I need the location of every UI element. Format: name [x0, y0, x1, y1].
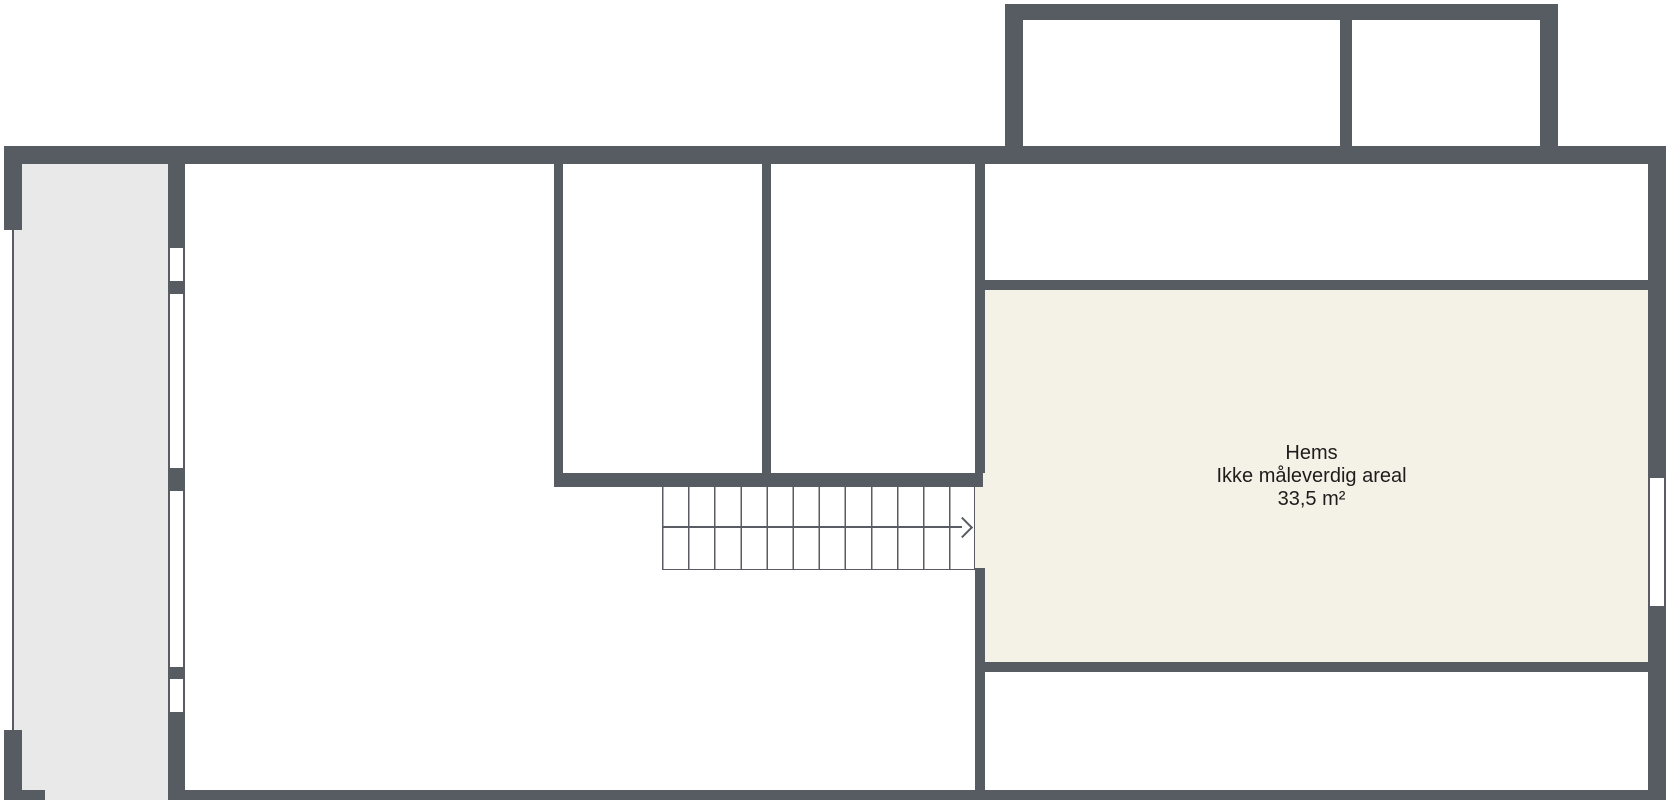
stair-walk-line	[662, 526, 962, 528]
room-area: 33,5 m²	[1278, 488, 1346, 511]
wall-interior-room-divider	[762, 164, 771, 473]
staircase	[662, 487, 975, 570]
room-note: Ikke måleverdig areal	[1216, 465, 1406, 488]
wall-protrusion-top	[1005, 4, 1558, 20]
wall-exterior-bottom	[168, 790, 1666, 800]
window-balcony-2	[168, 294, 185, 468]
floor-plan: Hems Ikke måleverdig areal 33,5 m²	[0, 0, 1670, 800]
window-balcony-1	[168, 248, 185, 281]
wall-protrusion-divider	[1340, 20, 1352, 146]
wall-protrusion-right	[1540, 4, 1558, 146]
wall-above-stairs	[554, 473, 983, 487]
window-balcony-4	[168, 679, 185, 712]
wall-exterior-top	[4, 146, 1666, 164]
window-balcony-3	[168, 491, 185, 667]
wall-left-bottom-stub	[4, 730, 22, 800]
wall-balcony-upper	[168, 164, 185, 248]
wall-hems-bottom	[975, 662, 1666, 672]
wall-left-top-stub	[4, 146, 22, 230]
wall-balcony-lower	[168, 712, 185, 800]
wall-hems-top	[975, 280, 1666, 290]
window-right-wall	[1648, 478, 1666, 606]
window-mullion-2	[168, 468, 185, 491]
balcony-edge-line	[12, 230, 14, 730]
wall-exterior-right	[1648, 164, 1666, 790]
window-mullion-3	[168, 667, 185, 679]
wall-interior-room1-left	[554, 164, 563, 473]
room-label-hems: Hems Ikke måleverdig areal 33,5 m²	[975, 290, 1648, 662]
window-mullion-1	[168, 281, 185, 294]
room-name: Hems	[1285, 442, 1337, 465]
balcony-area	[14, 164, 168, 800]
wall-bottom-left-stub	[22, 790, 45, 800]
wall-protrusion-left	[1005, 4, 1023, 146]
